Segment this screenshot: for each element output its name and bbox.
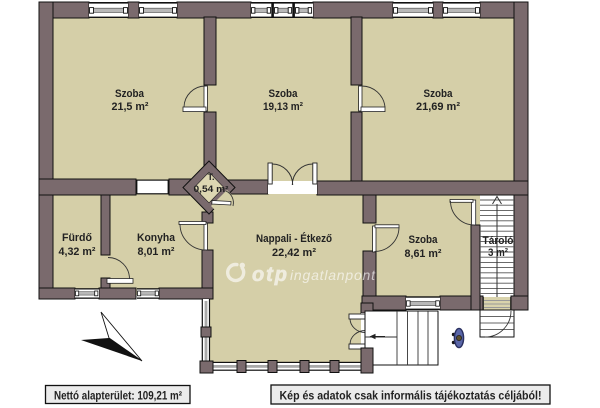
svg-text:Konyha: Konyha bbox=[137, 232, 176, 244]
svg-text:Szoba: Szoba bbox=[115, 88, 145, 100]
svg-text:21,69 m²: 21,69 m² bbox=[416, 101, 460, 113]
svg-text:Kép és adatok csak informális: Kép és adatok csak informális tájékoztat… bbox=[280, 389, 542, 403]
svg-text:Tároló: Tároló bbox=[483, 235, 514, 247]
svg-text:Nettó alapterület: 109,21 m²: Nettó alapterület: 109,21 m² bbox=[54, 389, 182, 403]
svg-text:Nappali - Étkező: Nappali - Étkező bbox=[256, 232, 332, 245]
svg-text:19,13 m²: 19,13 m² bbox=[263, 101, 303, 113]
svg-text:8,61 m²: 8,61 m² bbox=[405, 248, 442, 260]
svg-text:Fürdő: Fürdő bbox=[62, 232, 92, 244]
svg-text:Szoba: Szoba bbox=[409, 234, 439, 246]
svg-text:Szoba: Szoba bbox=[424, 88, 454, 100]
svg-text:4,32 m²: 4,32 m² bbox=[59, 246, 96, 258]
svg-text:Szoba: Szoba bbox=[269, 88, 299, 100]
svg-text:otp: otp bbox=[252, 264, 287, 286]
svg-text:22,42 m²: 22,42 m² bbox=[272, 247, 316, 259]
svg-text:8,01 m²: 8,01 m² bbox=[138, 246, 175, 258]
svg-text:0,54 m²: 0,54 m² bbox=[194, 184, 229, 194]
svg-text:ingatlanpont: ingatlanpont bbox=[290, 267, 376, 283]
svg-text:3 m²: 3 m² bbox=[488, 247, 508, 259]
svg-text:21,5 m²: 21,5 m² bbox=[112, 101, 149, 113]
svg-text:T.: T. bbox=[207, 172, 214, 182]
